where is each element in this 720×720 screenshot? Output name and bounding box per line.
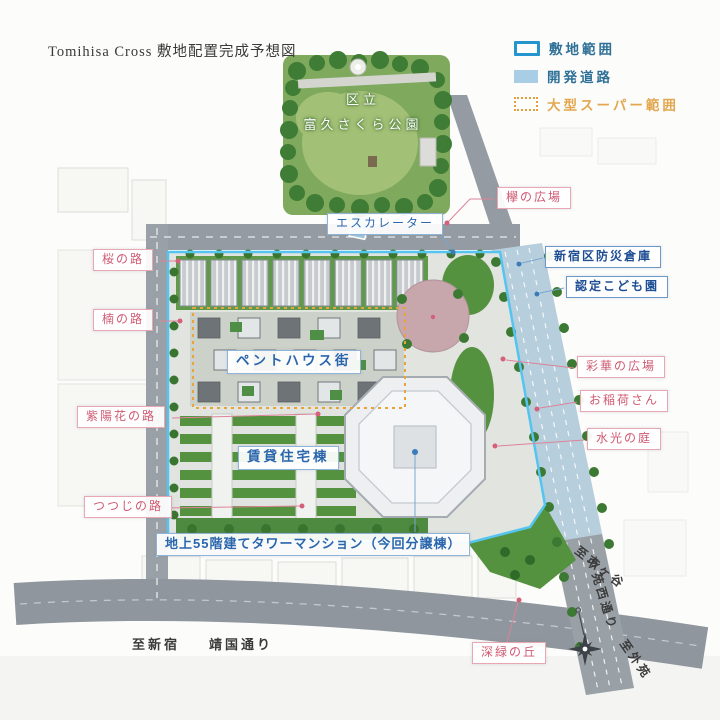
label-ajisai-path: 紫陽花の路 (77, 406, 165, 428)
label-penthouse-street: ペントハウス街 (227, 350, 361, 374)
legend-item-supermarket-extent: 大型スーパー範囲 (514, 94, 679, 114)
label-kusunoki-path: 楠の路 (93, 309, 153, 331)
park-name-label: 区立 富久さくら公園 (293, 88, 433, 137)
label-suiko-garden: 水光の庭 (587, 428, 661, 450)
legend: 敷地範囲 開発道路 大型スーパー範囲 (514, 38, 679, 122)
road-fill-swatch (514, 70, 538, 83)
legend-label: 敷地範囲 (549, 38, 615, 58)
roadtext-yasukuni-dori: 靖国通り (209, 634, 273, 653)
label-tower-mansion: 地上55階建てタワーマンション（今回分譲棟） (156, 533, 470, 556)
park-statue (368, 156, 377, 167)
label-disaster-warehouse: 新宿区防災倉庫 (545, 246, 661, 268)
label-escalator: エスカレーター (327, 213, 443, 235)
roadtext-to-shinjuku: 至新宿 (132, 634, 180, 653)
label-tsutsuji-path: つつじの路 (84, 496, 172, 518)
label-saika-plaza: 彩華の広場 (577, 356, 665, 378)
park-name-line1: 区立 (293, 88, 433, 113)
legend-label: 大型スーパー範囲 (547, 94, 679, 114)
legend-label: 開発道路 (547, 66, 613, 86)
label-kindergarten: 認定こども園 (566, 276, 668, 298)
page-title: Tomihisa Cross 敷地配置完成予想図 (48, 40, 297, 61)
site-outline-swatch (514, 41, 540, 56)
legend-item-development-road: 開発道路 (514, 66, 679, 86)
label-rental-residence: 賃貸住宅棟 (238, 446, 339, 470)
dotted-outline-swatch (514, 97, 538, 111)
saika-plaza-circle (397, 280, 469, 352)
site-plan-page: Tomihisa Cross 敷地配置完成予想図 敷地範囲 開発道路 大型スーパ… (0, 0, 720, 720)
label-shinryoku-hill: 深緑の丘 (472, 642, 546, 664)
label-sakura-path: 桜の路 (93, 249, 153, 271)
label-keyaki-plaza: 欅の広場 (497, 187, 571, 209)
park-name-line2: 富久さくら公園 (293, 113, 433, 138)
penthouse-roof-row (176, 256, 428, 310)
legend-item-site-extent: 敷地範囲 (514, 38, 679, 58)
label-oinari-san: お稲荷さん (580, 390, 668, 412)
